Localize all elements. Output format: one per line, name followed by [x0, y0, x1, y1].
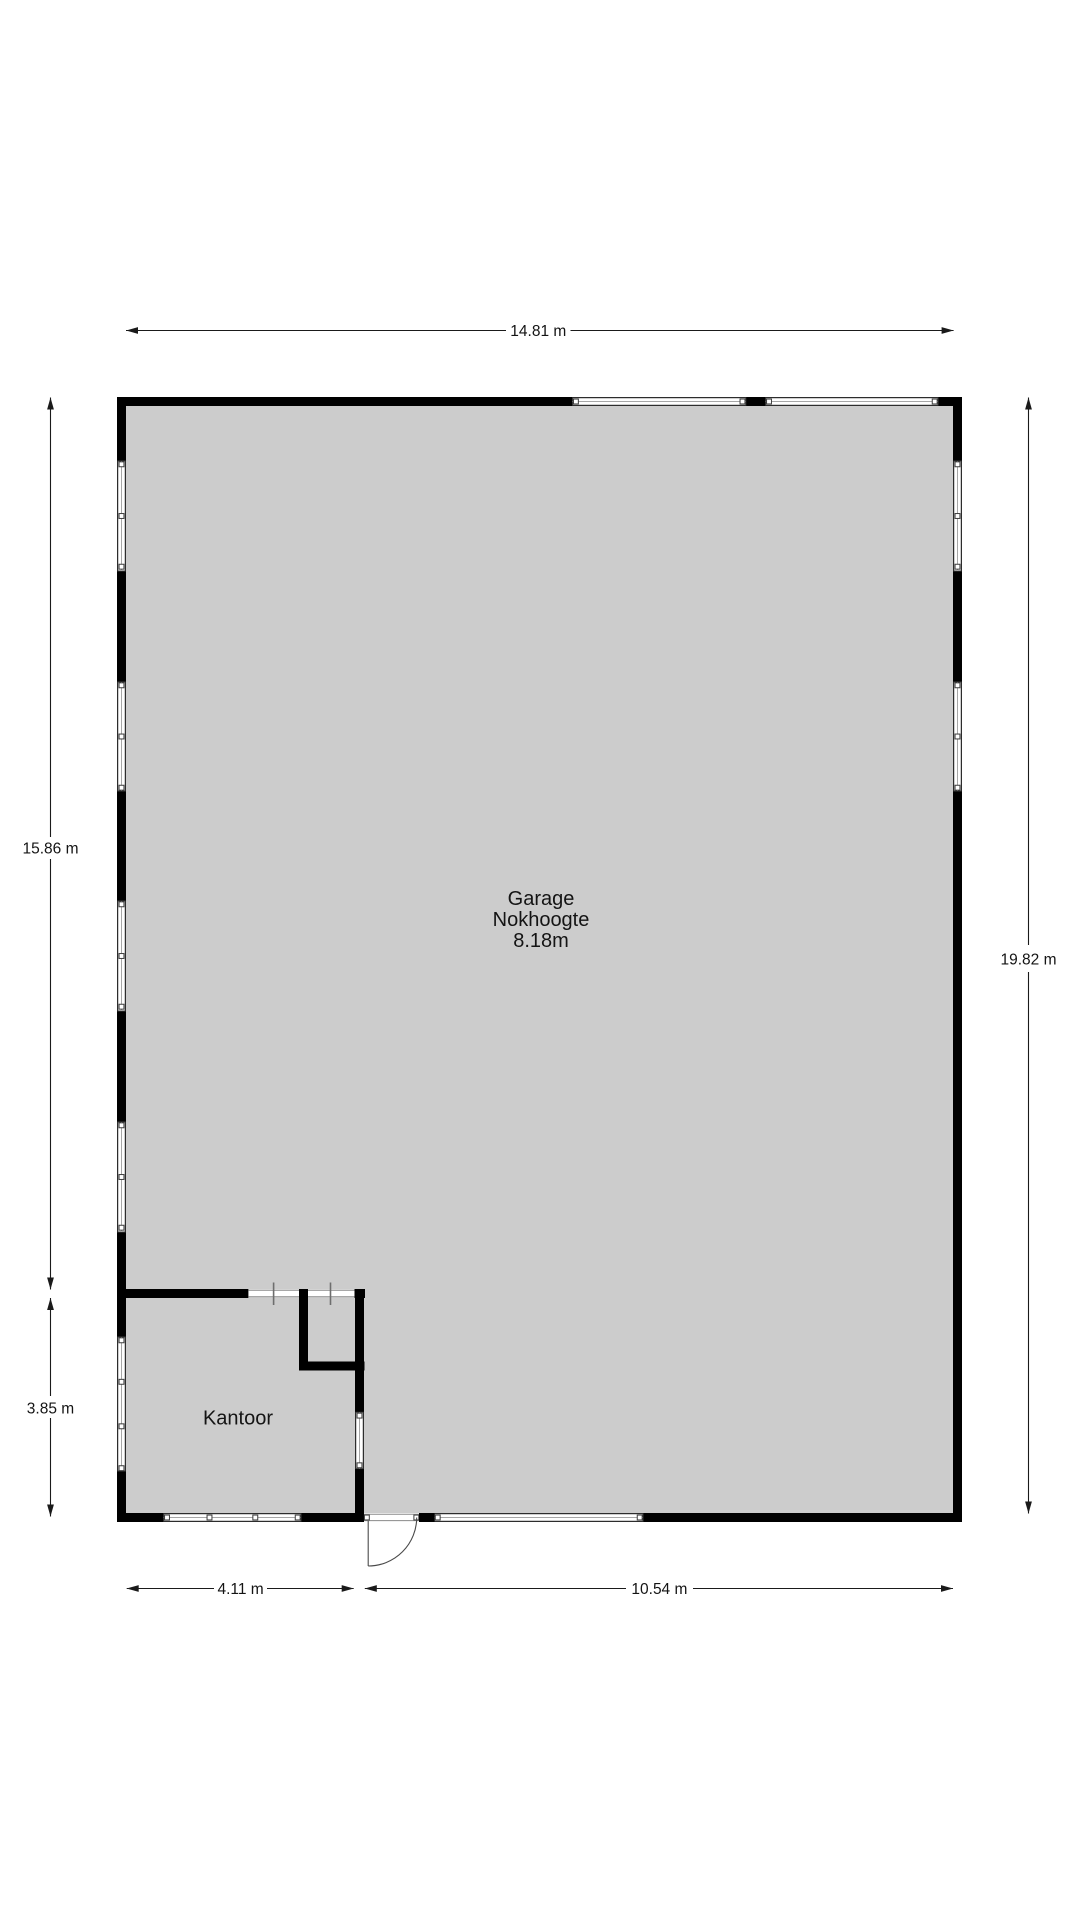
svg-text:Kantoor: Kantoor	[203, 1408, 273, 1430]
svg-text:10.54 m: 10.54 m	[631, 1581, 687, 1598]
svg-text:15.86 m: 15.86 m	[22, 841, 78, 858]
svg-text:Garage: Garage	[508, 888, 575, 910]
svg-text:4.11 m: 4.11 m	[217, 1581, 263, 1598]
svg-text:19.82 m: 19.82 m	[1000, 952, 1056, 969]
svg-text:8.18m: 8.18m	[513, 930, 569, 952]
svg-text:3.85 m: 3.85 m	[27, 1401, 74, 1418]
svg-text:Nokhoogte: Nokhoogte	[493, 909, 590, 931]
svg-text:14.81 m: 14.81 m	[510, 323, 566, 340]
